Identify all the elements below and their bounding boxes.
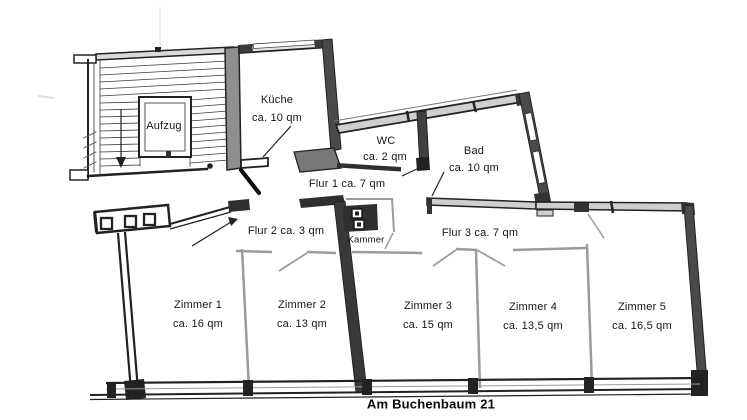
entrance-door xyxy=(241,170,259,193)
zimmer5-name-label: Zimmer 5 xyxy=(618,301,666,313)
floorplan-page: Aufzug Küche ca. 10 qm WC ca. 2 qm Bad c… xyxy=(0,0,747,420)
bad-area-label: ca. 10 qm xyxy=(449,162,499,174)
wc-door-swing xyxy=(402,168,419,176)
room-partitions xyxy=(236,244,592,389)
kueche-door-swing xyxy=(263,126,291,157)
stairwell-walls xyxy=(70,47,233,180)
zimmer2-area-label: ca. 13 qm xyxy=(277,318,327,330)
zimmer2-door-swing xyxy=(279,253,307,271)
aufzug-label: Aufzug xyxy=(146,120,181,132)
flur1-label: Flur 1 ca. 7 qm xyxy=(309,178,385,190)
wc-area-label: ca. 2 qm xyxy=(363,151,407,163)
floor-plan-drawing xyxy=(0,0,747,420)
flur2-label: Flur 2 ca. 3 qm xyxy=(248,225,324,237)
kueche-name-label: Küche xyxy=(261,94,293,106)
zimmer3-name-label: Zimmer 3 xyxy=(404,300,452,312)
zimmer4-name-label: Zimmer 4 xyxy=(509,301,557,313)
address-title: Am Buchenbaum 21 xyxy=(367,397,495,412)
zimmer2-name-label: Zimmer 2 xyxy=(278,299,326,311)
zimmer5-door-swing xyxy=(588,214,604,238)
kammer-door-swing xyxy=(385,233,393,249)
zimmer3-door-swing xyxy=(433,250,456,266)
stair-direction-arrow xyxy=(116,157,126,168)
zimmer5-area-label: ca. 16,5 qm xyxy=(612,320,672,332)
bad-name-label: Bad xyxy=(464,145,484,157)
zimmer4-area-label: ca. 13,5 qm xyxy=(503,320,563,332)
wc-name-label: WC xyxy=(377,135,396,147)
zimmer4-door-swing xyxy=(477,250,505,266)
zimmer3-area-label: ca. 15 qm xyxy=(403,319,453,331)
kammer-label: Kammer xyxy=(347,235,384,246)
flur3-label: Flur 3 ca. 7 qm xyxy=(442,227,518,239)
zimmer1-left-wall xyxy=(118,232,146,400)
bad-door-swing xyxy=(432,172,444,196)
flur3-zimmer5-walls xyxy=(536,201,708,396)
zimmer1-area-label: ca. 16 qm xyxy=(173,318,223,330)
zimmer1-name-label: Zimmer 1 xyxy=(174,299,222,311)
kueche-area-label: ca. 10 qm xyxy=(252,112,302,124)
flur2-pillar-wall xyxy=(93,199,250,233)
